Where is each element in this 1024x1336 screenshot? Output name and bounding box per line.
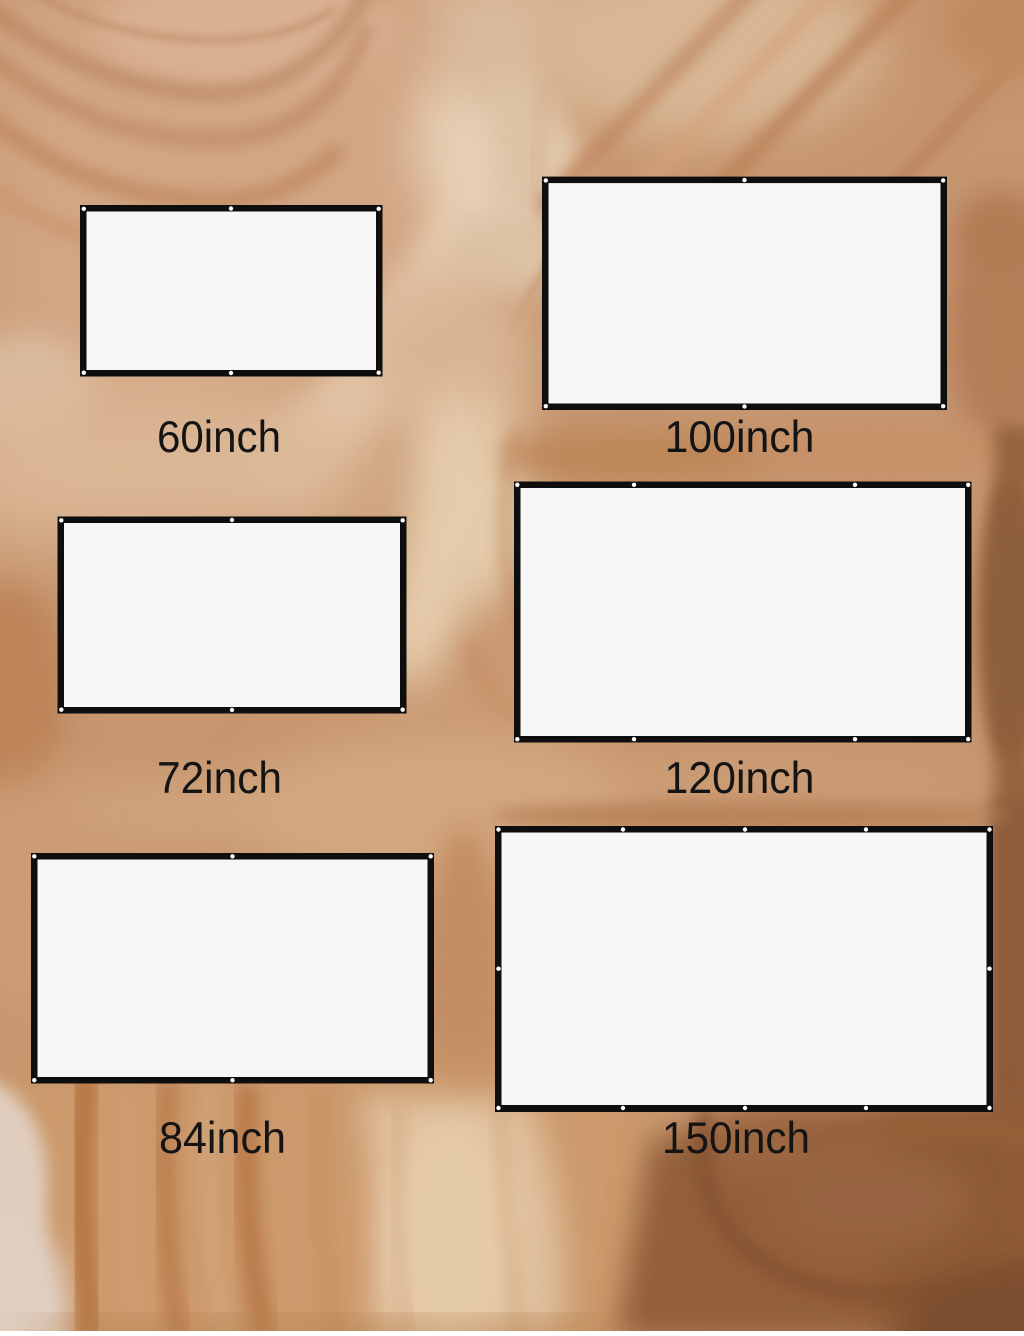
svg-text:150inch: 150inch (662, 1114, 810, 1163)
svg-text:120inch: 120inch (665, 754, 815, 803)
svg-text:84inch: 84inch (159, 1114, 286, 1163)
svg-text:72inch: 72inch (157, 754, 282, 803)
svg-text:60inch: 60inch (157, 413, 281, 462)
svg-text:100inch: 100inch (665, 413, 815, 462)
